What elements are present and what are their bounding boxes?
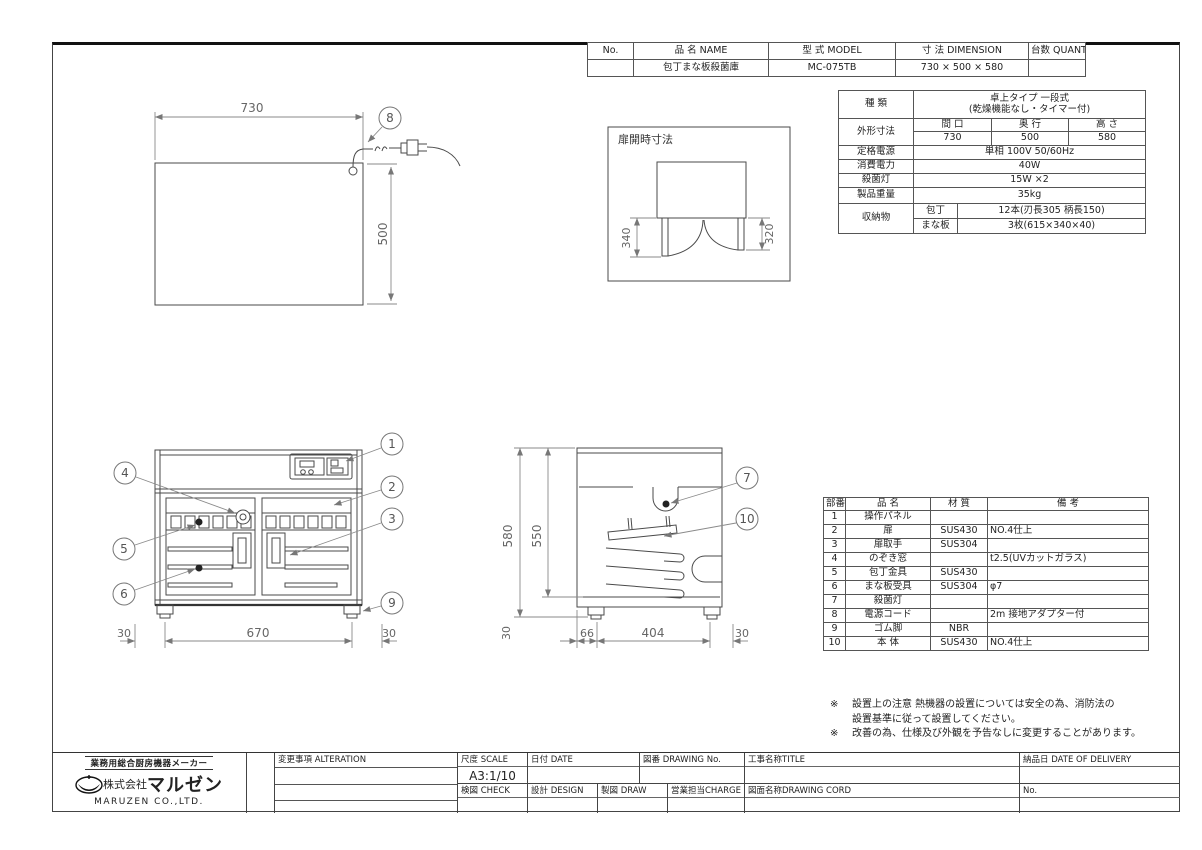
note-2: ※ 改善の為、仕様及び外観を予告なしに変更することがあります。 — [830, 727, 1182, 742]
drawing-cord-label: 図面名称DRAWING CORD — [745, 784, 1019, 798]
dim-front-right: 30 — [382, 627, 396, 640]
parts-row: 3扉取手SUS304 — [824, 539, 1149, 553]
door-open-view: 扉開時寸法 340 320 — [608, 127, 790, 281]
callout-6: 6 — [120, 587, 128, 601]
company-prefix: 株式会社 — [103, 776, 147, 792]
parts-col-material: 材 質 — [931, 498, 988, 511]
draw-cell: 製図 DRAW — [598, 784, 668, 813]
alteration-cell: 変更事項 ALTERATION — [275, 753, 458, 813]
spec-lamp-value: 15W ×2 — [914, 174, 1146, 188]
title-label: 工事名称TITLE — [745, 753, 1019, 767]
dim-side-total: 580 — [501, 525, 515, 548]
parts-col-no: 部番 — [824, 498, 846, 511]
callout-8: 8 — [386, 111, 394, 125]
product-name: 包丁まな板殺菌庫 — [634, 60, 769, 77]
spec-power-label: 定格電源 — [839, 146, 914, 160]
product-quantity — [1029, 60, 1086, 77]
spec-storage-board-value: 3枚(615×340×40) — [958, 219, 1146, 234]
parts-col-note: 備 考 — [988, 498, 1149, 511]
dim-top-width: 730 — [241, 101, 264, 115]
power-cord — [349, 140, 460, 175]
header-col-no: No. — [588, 43, 634, 60]
spec-dims-h3: 高 さ — [1069, 119, 1146, 132]
spec-dims-h1: 間 口 — [914, 119, 992, 132]
drawing-no-label: 図番 DRAWING No. — [640, 753, 744, 767]
parts-row: 8電源コード2m 接地アダプター付 — [824, 609, 1149, 623]
front-view: 30 670 30 1 2 3 9 4 5 6 — [113, 433, 403, 648]
delivery-label: 納品日 DATE OF DELIVERY — [1020, 753, 1180, 767]
spec-dims-v3: 580 — [1069, 132, 1146, 146]
note-1: ※ 設置上の注意 熱機器の設置については安全の為、消防法の 設置基準に従って設置… — [830, 698, 1182, 727]
side-feet — [588, 607, 720, 619]
dim-side-front: 66 — [580, 627, 594, 640]
delivery-no-cell: No. — [1020, 784, 1180, 813]
dim-side-body: 550 — [530, 525, 544, 548]
control-panel — [290, 454, 352, 479]
callout-10: 10 — [739, 512, 754, 526]
draw-label: 製図 DRAW — [598, 784, 667, 798]
notes: ※ 設置上の注意 熱機器の設置については安全の為、消防法の 設置基準に従って設置… — [830, 698, 1182, 742]
header-col-model: 型 式 MODEL — [769, 43, 896, 60]
title-cell: 工事名称TITLE — [745, 753, 1020, 784]
drawing-no-cell: 図番 DRAWING No. — [640, 753, 745, 784]
dim-door-right: 320 — [763, 224, 776, 245]
check-label: 検図 CHECK — [458, 784, 527, 798]
date-cell: 日付 DATE — [528, 753, 640, 784]
scale-value: A3:1/10 — [458, 767, 527, 783]
parts-row: 5包丁金具SUS430 — [824, 567, 1149, 581]
delivery-no-label: No. — [1020, 784, 1180, 798]
design-cell: 設計 DESIGN — [528, 784, 598, 813]
dim-side-foot: 30 — [500, 626, 513, 640]
dim-side-center: 404 — [642, 626, 665, 640]
spec-power-value: 単相 100V 50/60Hz — [914, 146, 1146, 160]
spec-table: 種 類 卓上タイプ 一段式 (乾燥機能なし・タイマー付) 外形寸法 間 口 奥 … — [838, 90, 1146, 234]
company-name: マルゼン — [147, 771, 223, 797]
parts-row: 6まな板受具SUS304φ7 — [824, 581, 1149, 595]
spec-storage-knife-value: 12本(刃長305 柄長150) — [958, 204, 1146, 219]
parts-row: 2扉SUS430NO.4仕上 — [824, 525, 1149, 539]
check-cell: 検図 CHECK — [458, 784, 528, 813]
parts-row: 10本 体SUS430NO.4仕上 — [824, 637, 1149, 651]
alteration-label: 変更事項 ALTERATION — [275, 753, 457, 768]
spec-kind-label: 種 類 — [839, 91, 914, 119]
door-open-label: 扉開時寸法 — [618, 132, 673, 146]
charge-cell: 営業担当CHARGE — [668, 784, 745, 813]
header-col-name: 品 名 NAME — [634, 43, 769, 60]
callout-1: 1 — [388, 437, 396, 451]
spec-lamp-label: 殺菌灯 — [839, 174, 914, 188]
dim-front-left: 30 — [117, 627, 131, 640]
callout-2: 2 — [388, 480, 396, 494]
dim-front-center: 670 — [247, 626, 270, 640]
company-tagline: 業務用総合厨房機器メーカー — [85, 756, 212, 770]
callout-7: 7 — [743, 471, 751, 485]
dim-side-back: 30 — [735, 627, 749, 640]
drawing-cord-cell: 図面名称DRAWING CORD — [745, 784, 1020, 813]
board-support-rods — [606, 548, 684, 598]
parts-col-name: 品 名 — [846, 498, 931, 511]
date-label: 日付 DATE — [528, 753, 639, 767]
callout-3: 3 — [388, 512, 396, 526]
parts-row: 1操作パネル — [824, 511, 1149, 525]
spec-storage-label: 収納物 — [839, 204, 914, 234]
dim-top-depth: 500 — [376, 223, 390, 246]
top-view: 730 500 8 — [155, 101, 460, 305]
door-handles — [233, 533, 285, 568]
callout-9: 9 — [388, 596, 396, 610]
parts-row: 4のぞき窓t2.5(UVカットガラス) — [824, 553, 1149, 567]
spec-storage-knife-label: 包丁 — [914, 204, 958, 219]
parts-row: 7殺菌灯 — [824, 595, 1149, 609]
title-block: 業務用総合厨房機器メーカー 株式会社 マルゼン MARUZEN CO.,LTD.… — [52, 752, 1180, 812]
company-name-en: MARUZEN CO.,LTD. — [52, 797, 246, 807]
side-view: 580 550 30 66 404 30 7 10 — [500, 448, 758, 648]
drawing-sheet: 730 500 8 扉開時寸法 — [0, 0, 1202, 850]
delivery-cell: 納品日 DATE OF DELIVERY — [1020, 753, 1180, 784]
header-table: No. 品 名 NAME 型 式 MODEL 寸 法 DIMENSION 台数 … — [587, 42, 1086, 77]
scale-cell: 尺度 SCALE A3:1/10 — [458, 753, 528, 784]
spec-dims-v1: 730 — [914, 132, 992, 146]
side-cutout — [692, 556, 722, 582]
design-label: 設計 DESIGN — [528, 784, 597, 798]
maruzen-logo-icon — [75, 774, 103, 794]
header-col-quantity: 台数 QUANTITY — [1029, 43, 1086, 60]
spec-consumption-value: 40W — [914, 160, 1146, 174]
scale-label: 尺度 SCALE — [458, 753, 527, 767]
spec-dims-label: 外形寸法 — [839, 119, 914, 146]
parts-table: 部番 品 名 材 質 備 考 1操作パネル 2扉SUS430NO.4仕上 3扉取… — [823, 497, 1149, 651]
spacer-cell — [247, 753, 275, 813]
spec-storage-board-label: まな板 — [914, 219, 958, 234]
parts-row: 9ゴム脚NBR — [824, 623, 1149, 637]
charge-label: 営業担当CHARGE — [668, 784, 744, 798]
front-feet — [157, 605, 360, 618]
product-no — [588, 60, 634, 77]
product-dimension: 730 × 500 × 580 — [896, 60, 1029, 77]
header-col-dimension: 寸 法 DIMENSION — [896, 43, 1029, 60]
product-model: MC-075TB — [769, 60, 896, 77]
dim-door-left: 340 — [620, 228, 633, 249]
company-cell: 業務用総合厨房機器メーカー 株式会社 マルゼン MARUZEN CO.,LTD. — [52, 753, 247, 813]
board-support-bars — [168, 547, 348, 587]
knife-bracket — [608, 516, 677, 540]
spec-kind-value: 卓上タイプ 一段式 (乾燥機能なし・タイマー付) — [914, 91, 1146, 119]
spec-dims-v2: 500 — [992, 132, 1069, 146]
spec-weight-value: 35kg — [914, 188, 1146, 204]
callout-5: 5 — [120, 542, 128, 556]
callout-4: 4 — [121, 466, 129, 480]
spec-weight-label: 製品重量 — [839, 188, 914, 204]
spec-consumption-label: 消費電力 — [839, 160, 914, 174]
spec-dims-h2: 奥 行 — [992, 119, 1069, 132]
peephole-window — [236, 510, 250, 524]
